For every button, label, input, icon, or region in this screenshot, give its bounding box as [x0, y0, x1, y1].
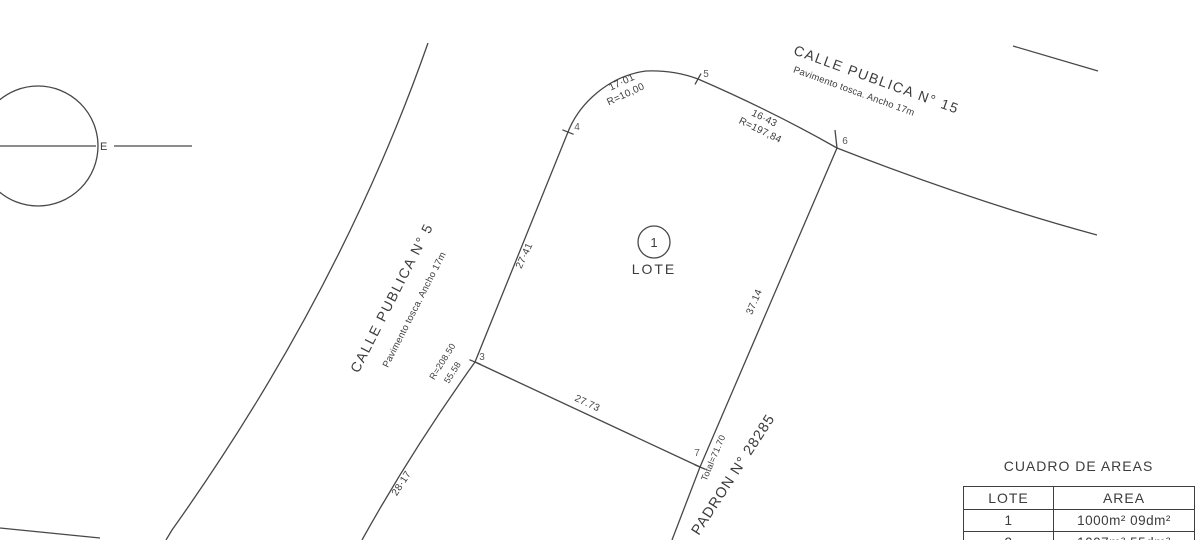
- compass-rose: E: [0, 86, 192, 206]
- areas-col-area: AREA: [1054, 487, 1195, 510]
- areas-row1-area: 1000m² 09dm²: [1054, 510, 1195, 532]
- areas-row2-area: 1007m² 55dm²: [1054, 532, 1195, 540]
- areas-row1-lote: 1: [964, 510, 1054, 532]
- vertex-6-label: 6: [842, 136, 848, 147]
- table-row: 1 1000m² 09dm²: [964, 510, 1195, 532]
- areas-table-header-row: LOTE AREA: [964, 487, 1195, 510]
- bottom-left-street-line: [0, 528, 100, 538]
- dim-west-south-length: 28·17: [390, 469, 414, 498]
- calle15-south-curb-line: [837, 148, 1097, 235]
- lot-number: 1: [650, 235, 657, 250]
- lot-street-boundary: [362, 71, 837, 540]
- lot-badge: 1 LOTE: [632, 226, 677, 277]
- compass-east-label: E: [100, 141, 107, 153]
- areas-table-title: CUADRO DE AREAS: [963, 458, 1194, 474]
- survey-plan-canvas: E 1 LOTE CALLE PUBLICA N° 5 Pavimento to…: [0, 0, 1200, 540]
- vertex-4-label: 4: [574, 122, 580, 133]
- vertex-5-label: 5: [703, 69, 709, 80]
- vertex-3-label: 3: [479, 352, 485, 363]
- lot-word: LOTE: [632, 261, 677, 277]
- dim-south-length: 27.73: [573, 393, 602, 414]
- areas-row2-lote: 2: [964, 532, 1054, 540]
- areas-table: LOTE AREA 1 1000m² 09dm² 2 1007m² 55dm²: [963, 486, 1195, 540]
- lot-rear-boundary: [475, 362, 700, 467]
- dim-east-length: 37.14: [744, 288, 765, 317]
- areas-col-lote: LOTE: [964, 487, 1054, 510]
- calle15-north-curb-line: [1013, 46, 1098, 71]
- table-row: 2 1007m² 55dm²: [964, 532, 1195, 540]
- vertex-7-label: 7: [694, 448, 700, 459]
